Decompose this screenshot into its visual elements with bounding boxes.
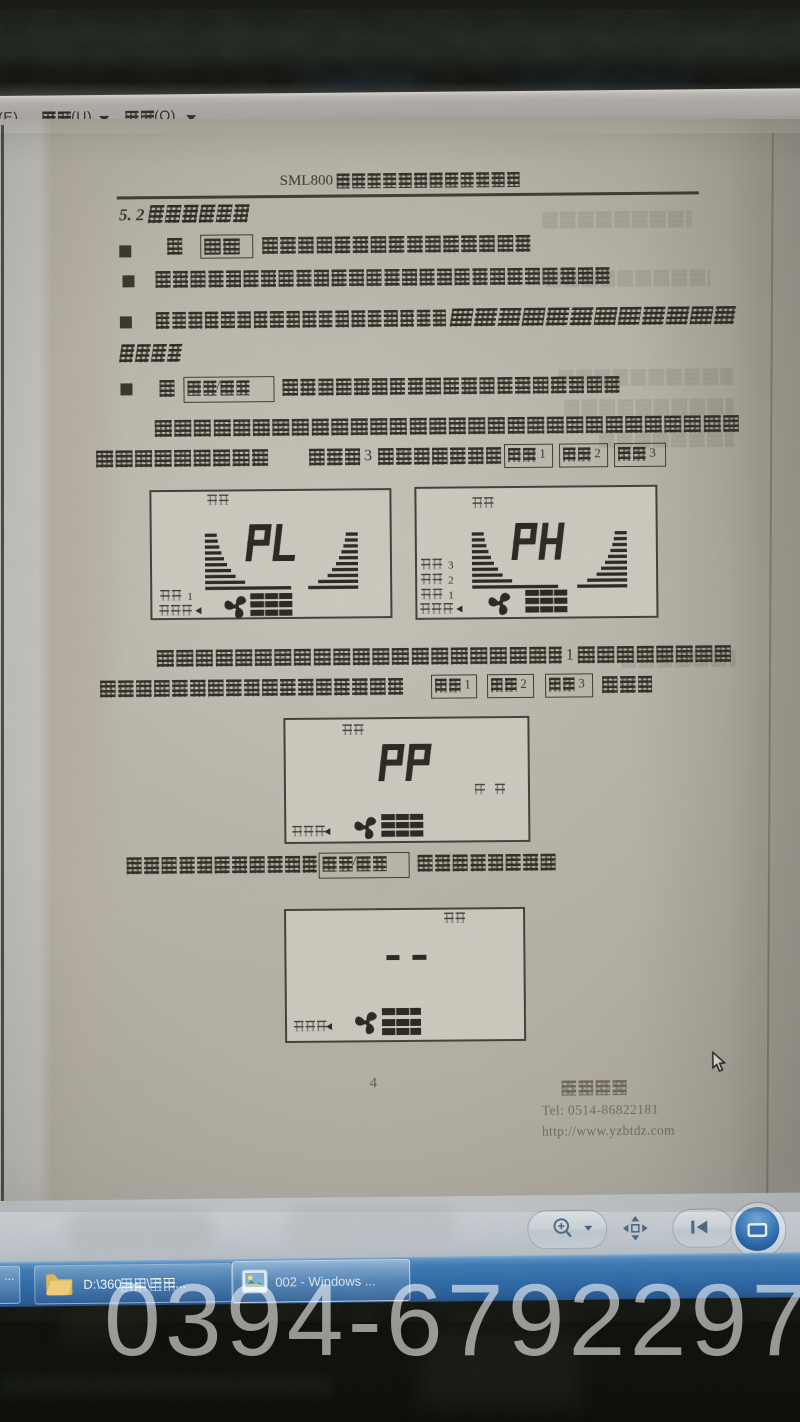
svg-text:2: 2 [448,575,454,587]
svg-text:1: 1 [448,590,454,602]
svg-text:1: 1 [187,591,193,603]
svg-text:3: 3 [448,560,454,572]
